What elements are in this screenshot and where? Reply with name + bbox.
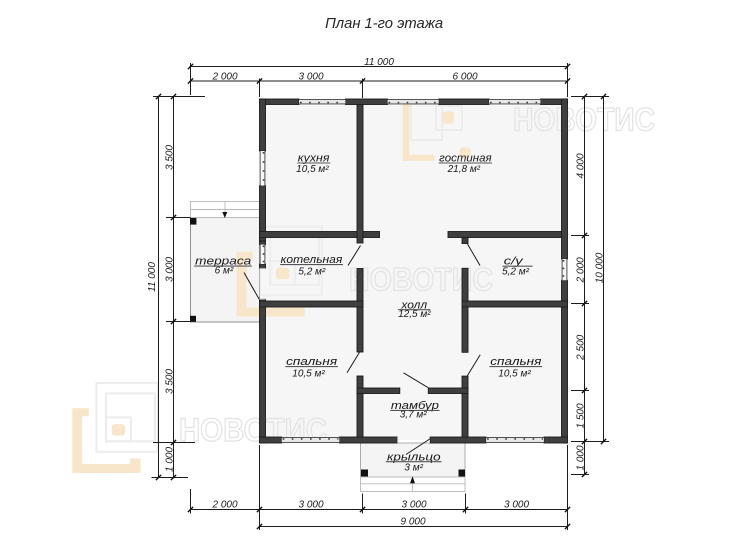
svg-text:1 500: 1 500 bbox=[575, 403, 586, 428]
svg-text:2 500: 2 500 bbox=[575, 334, 586, 360]
svg-text:11 000: 11 000 bbox=[147, 262, 158, 292]
svg-text:2 000: 2 000 bbox=[211, 499, 237, 510]
svg-text:НОВОТИС: НОВОТИС bbox=[349, 261, 493, 297]
svg-text:10,5 м²: 10,5 м² bbox=[296, 164, 329, 175]
svg-text:9 000: 9 000 bbox=[400, 516, 425, 527]
svg-text:3 000: 3 000 bbox=[164, 257, 175, 282]
svg-text:21,8 м²: 21,8 м² bbox=[447, 164, 481, 175]
svg-text:3 000: 3 000 bbox=[298, 72, 323, 83]
svg-text:2 000: 2 000 bbox=[575, 257, 586, 283]
svg-text:3 000: 3 000 bbox=[298, 499, 323, 510]
svg-text:3,7 м²: 3,7 м² bbox=[400, 409, 428, 420]
svg-text:11 000: 11 000 bbox=[364, 57, 394, 68]
svg-text:10,5 м²: 10,5 м² bbox=[292, 368, 325, 379]
svg-text:5,2 м²: 5,2 м² bbox=[502, 266, 530, 277]
svg-text:3 000: 3 000 bbox=[504, 499, 529, 510]
svg-text:1 000: 1 000 bbox=[575, 445, 586, 470]
svg-text:4 000: 4 000 bbox=[575, 153, 586, 178]
svg-text:3 500: 3 500 bbox=[164, 145, 175, 170]
svg-text:10 000: 10 000 bbox=[594, 252, 605, 283]
svg-text:5,2 м²: 5,2 м² bbox=[298, 266, 326, 277]
svg-text:3 000: 3 000 bbox=[401, 499, 426, 510]
svg-text:1 000: 1 000 bbox=[164, 447, 175, 472]
svg-text:6 000: 6 000 bbox=[452, 72, 477, 83]
svg-text:12,5 м²: 12,5 м² bbox=[398, 309, 431, 320]
svg-text:3 м²: 3 м² bbox=[404, 463, 423, 474]
svg-text:3 500: 3 500 bbox=[164, 369, 175, 394]
svg-text:2 000: 2 000 bbox=[211, 72, 237, 83]
svg-text:10,5 м²: 10,5 м² bbox=[498, 368, 531, 379]
svg-text:План 1-го этажа: План 1-го этажа bbox=[325, 16, 443, 32]
svg-text:6 м²: 6 м² bbox=[215, 266, 234, 277]
